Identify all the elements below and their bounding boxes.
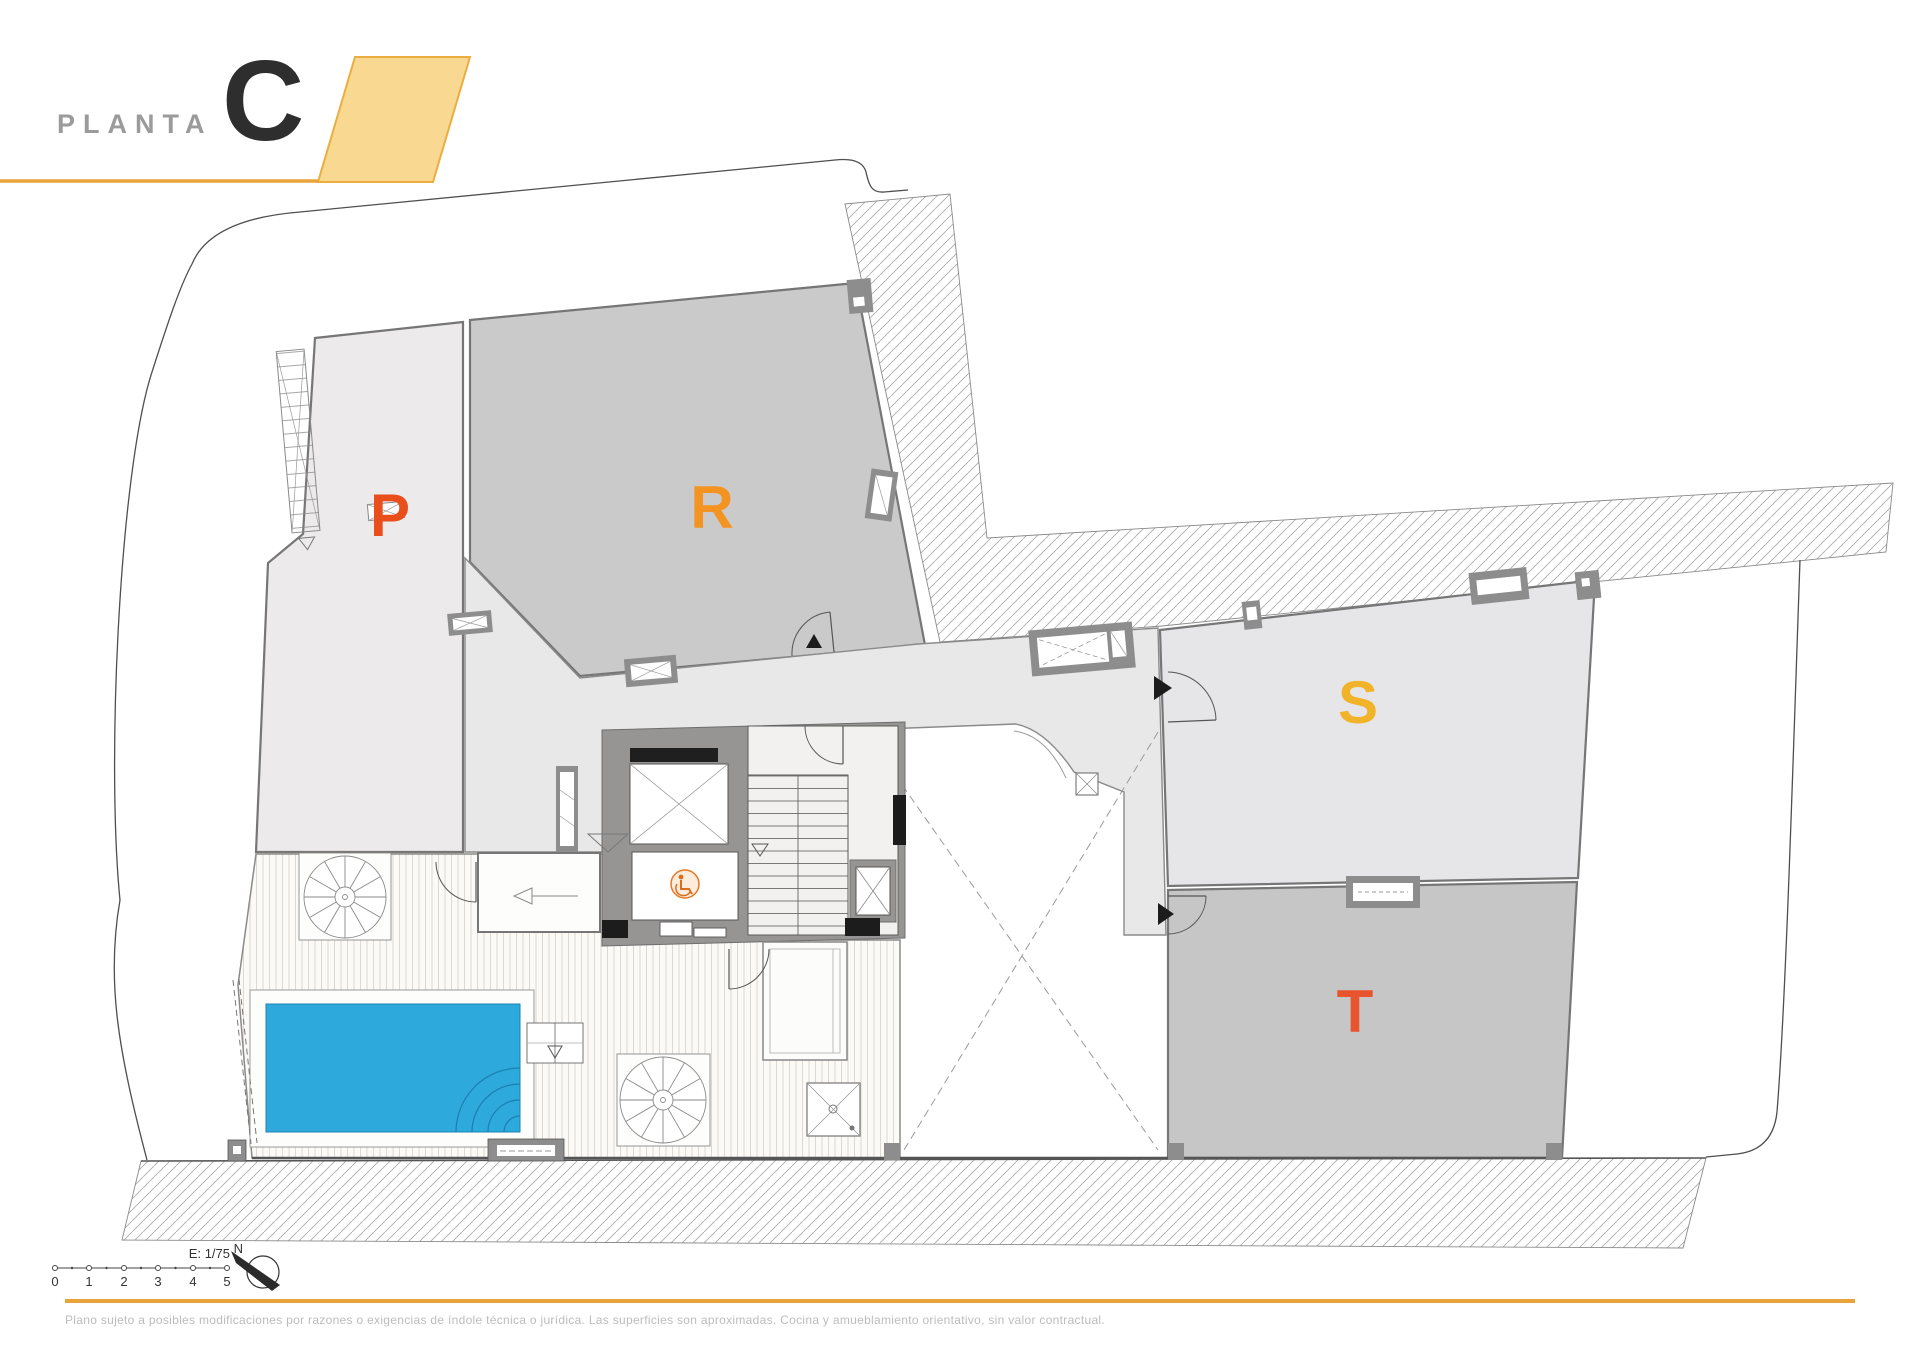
swimming-pool [250,990,583,1147]
window-wide [1468,567,1529,605]
window [447,610,493,636]
pool-side-steps [527,1023,583,1063]
corridor-skylight [1028,622,1136,677]
zone-t-label: T [1337,978,1374,1045]
north-compass: N [231,1241,280,1291]
north-label: N [234,1241,243,1256]
scale-bar: E: 1/75 0 1 2 3 4 5 [51,1246,230,1289]
zone-p-label: P [370,482,410,549]
outdoor-shower [807,1083,860,1136]
floor-letter: C [222,38,304,165]
spiral-staircase-lower [617,1054,710,1146]
zone-r-label: R [690,474,733,541]
floor-plan-page: PLANTA C [0,0,1920,1357]
footer-disclaimer: Plano sujeto a posibles modificaciones p… [65,1313,1105,1327]
svg-text:5: 5 [223,1274,230,1289]
vent-box [1076,773,1098,795]
header-parallelogram [318,57,470,182]
neighbor-wall-hatch [845,194,1893,642]
window-small [1242,600,1263,630]
svg-text:3: 3 [154,1274,161,1289]
svg-text:1: 1 [85,1274,92,1289]
pool-water [266,1004,520,1132]
void-open-to-below [865,732,1158,1150]
svg-text:4: 4 [189,1274,196,1289]
footer: Plano sujeto a posibles modificaciones p… [65,1301,1855,1327]
svg-text:0: 0 [51,1274,58,1289]
sidewalk-hatch [122,1158,1706,1248]
page-title: PLANTA [57,109,213,139]
wheelchair-icon [671,870,699,898]
svg-text:2: 2 [120,1274,127,1289]
corner-pillar [1575,570,1602,600]
corner-pillar [847,278,874,314]
header: PLANTA C [0,38,470,182]
scale-label: E: 1/75 [189,1246,230,1261]
zone-s-label: S [1338,669,1378,736]
tall-window [556,766,578,852]
window [624,655,678,687]
spiral-staircase-upper [299,853,391,940]
divider-window [1346,876,1420,908]
building-core [602,722,906,946]
